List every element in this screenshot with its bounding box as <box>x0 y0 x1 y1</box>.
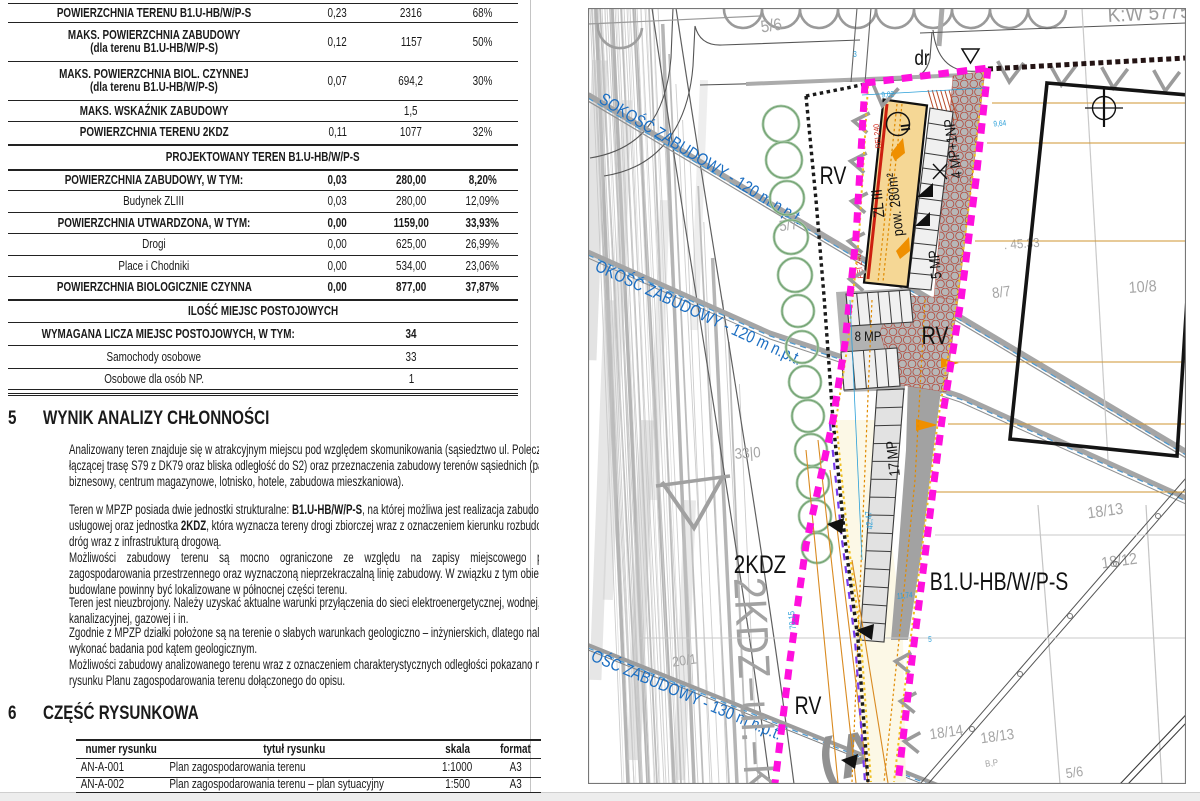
svg-text:20/1: 20/1 <box>671 651 697 670</box>
svg-text:2KDZ: 2KDZ <box>734 550 786 578</box>
svg-text:B1.U-HB/W/P-S: B1.U-HB/W/P-S <box>930 568 1069 596</box>
svg-text:5/6: 5/6 <box>1065 763 1085 781</box>
svg-text:B,P: B,P <box>984 757 999 769</box>
svg-text:. 45.33: . 45.33 <box>1003 235 1040 252</box>
svg-text:8 MP: 8 MP <box>855 328 882 344</box>
svg-text:RV: RV <box>922 322 949 350</box>
svg-text:42,47: 42,47 <box>863 510 875 530</box>
svg-text:9,64: 9,64 <box>993 118 1007 129</box>
svg-text:70,15: 70,15 <box>786 610 798 630</box>
svg-text:5 MP: 5 MP <box>925 249 944 279</box>
svg-text:8/7: 8/7 <box>991 283 1012 302</box>
svg-text:dr: dr <box>914 48 930 71</box>
svg-text:2KDZ–ul.–K: 2KDZ–ul.–K <box>724 576 785 784</box>
svg-text:3: 3 <box>853 49 857 59</box>
svg-text:RV: RV <box>795 692 822 720</box>
svg-text:5: 5 <box>928 634 932 644</box>
svg-text:5/6: 5/6 <box>759 15 783 37</box>
svg-text:9,02: 9,02 <box>881 89 895 100</box>
svg-text:33|0: 33|0 <box>734 445 761 464</box>
svg-text:RV: RV <box>820 162 847 190</box>
svg-text:11,74: 11,74 <box>896 590 913 601</box>
svg-text:10/8: 10/8 <box>1128 277 1157 297</box>
